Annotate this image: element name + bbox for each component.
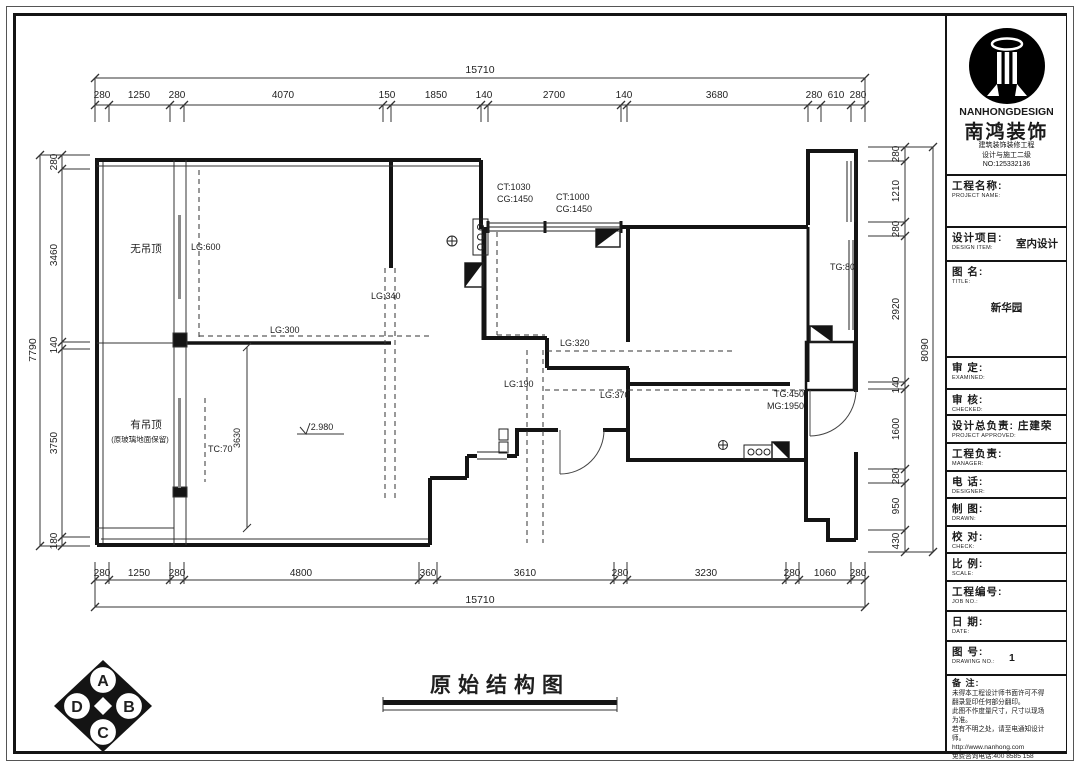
tb-row-checked: 审 核: CHECKED:	[947, 390, 1066, 416]
plan-wall-detail	[97, 160, 479, 545]
plan-interior-dims	[243, 343, 344, 532]
tb-row-scale: 比 例: SCALE:	[947, 554, 1066, 582]
title-underline-thick	[383, 700, 617, 705]
svg-text:4800: 4800	[290, 568, 313, 579]
dim-labels-top: 15710 280 1250 280 4070 150 1850 140 270…	[94, 64, 867, 101]
svg-text:3610: 3610	[514, 568, 537, 579]
svg-text:2920: 2920	[891, 297, 902, 320]
dim-labels-left: 7790 280 3460 140 3750 180	[27, 153, 60, 549]
svg-text:280: 280	[891, 145, 902, 162]
drawing-title-value: 新华园	[947, 300, 1066, 315]
svg-text:1250: 1250	[128, 90, 151, 101]
drawing-no-value: 1	[1009, 652, 1015, 664]
label-lg600: LG:600	[191, 242, 221, 252]
design-item-value: 室内设计	[1016, 236, 1058, 251]
svg-text:140: 140	[891, 376, 902, 393]
dim-total-right: 8090	[919, 338, 931, 362]
brand-logo-cell: NANHONGDESIGN 南鸿装饰 建筑装饰装修工程 设计与施工二级 NO:1…	[947, 16, 1066, 176]
note-line: http://www.nanhong.com	[952, 743, 1062, 752]
tb-row-manager: 工程负责: MANAGER:	[947, 444, 1066, 472]
note-line: 师。	[952, 734, 1062, 743]
tb-notes: 备 注: 未得本工程设计师书面许可不得 翻录复印任何部分翻印。 此图不作度量尺寸…	[947, 676, 1066, 761]
notes-title: 备 注:	[952, 679, 1062, 688]
note-line: 若有不明之处，请至电通知设计	[952, 725, 1062, 734]
svg-text:280: 280	[891, 220, 902, 237]
svg-text:4070: 4070	[272, 90, 295, 101]
label-has-ceiling-note: (原玻璃地面保留)	[111, 434, 169, 444]
tb-row-project-name: 工程名称: PROJECT NAME:	[947, 176, 1066, 228]
tb-row-job-no: 工程编号: JOB NO.:	[947, 582, 1066, 612]
corner-logo-letter-b: B	[123, 699, 135, 716]
note-line: 未得本工程设计师书面许可不得	[952, 689, 1062, 698]
note-line: 翻录复印任何部分翻印。	[952, 698, 1062, 707]
svg-text:430: 430	[891, 532, 902, 549]
svg-text:280: 280	[49, 153, 60, 170]
svg-text:140: 140	[49, 336, 60, 353]
tb-row-proofread: 校 对: CHECK:	[947, 527, 1066, 554]
drawing-sheet: 15710 280 1250 280 4070 150 1850 140 270…	[0, 0, 1080, 767]
column-icon	[969, 28, 1045, 104]
dim-chain-left	[36, 151, 90, 550]
label-no-ceiling: 无吊顶	[130, 243, 162, 255]
corner-logo-letter-c: C	[97, 725, 109, 742]
svg-text:3460: 3460	[49, 243, 60, 266]
label-tg80: TG:80	[830, 262, 855, 272]
tb-row-drawn: 制 图: DRAWN:	[947, 499, 1066, 527]
note-line: 为准。	[952, 716, 1062, 725]
tb-row-drawing-no: 图 号: DRAWING NO.: 1	[947, 642, 1066, 676]
label-lg300: LG:300	[270, 325, 300, 335]
svg-text:280: 280	[806, 90, 823, 101]
label-cg1450a: CG:1450	[497, 194, 533, 204]
svg-text:3750: 3750	[49, 431, 60, 454]
svg-text:140: 140	[476, 90, 493, 101]
label-cg1450b: CG:1450	[556, 204, 592, 214]
brand-sub2: 设计与施工二级	[947, 150, 1066, 160]
tb-row-examined: 审 定: EXAMINED:	[947, 358, 1066, 390]
svg-text:1850: 1850	[425, 90, 448, 101]
sheet-title-group: 原始结构图	[383, 673, 617, 712]
brand-logo-icon	[969, 28, 1045, 104]
svg-text:610: 610	[828, 90, 845, 101]
dim-total-top: 15710	[465, 64, 494, 76]
tb-row-drawing-title: 图 名: TITLE: 新华园	[947, 262, 1066, 358]
svg-text:1250: 1250	[128, 568, 151, 579]
svg-text:280: 280	[169, 90, 186, 101]
label-lg320: LG:320	[560, 338, 590, 348]
svg-text:280: 280	[891, 467, 902, 484]
svg-text:140: 140	[616, 90, 633, 101]
label-lg340: LG:340	[371, 291, 401, 301]
brand-sub1: 建筑装饰装修工程	[947, 140, 1066, 150]
dim-total-bottom: 15710	[465, 594, 494, 606]
label-3630: 3630	[232, 428, 242, 448]
svg-text:360: 360	[420, 568, 437, 579]
chief-designer-value: 庄建荣	[1018, 420, 1053, 432]
corner-logo-letter-d: D	[71, 699, 83, 716]
label-has-ceiling: 有吊顶	[130, 418, 162, 431]
svg-text:280: 280	[94, 90, 111, 101]
svg-text:950: 950	[891, 497, 902, 514]
svg-text:280: 280	[784, 568, 801, 579]
svg-text:280: 280	[850, 90, 867, 101]
corner-diamond-logo: A B C D	[54, 660, 152, 752]
brand-sub3: NO:125332136	[947, 161, 1066, 168]
corner-logo-letter-a: A	[97, 673, 109, 690]
svg-text:1600: 1600	[891, 417, 902, 440]
tb-row-chief-designer: 设计总负责: 庄建荣 PROJECT APPROVED:	[947, 416, 1066, 444]
label-lg190: LG:190	[504, 379, 534, 389]
tb-row-telephone: 电 话: DESIGNER:	[947, 472, 1066, 499]
label-tc70: TC:70	[208, 444, 233, 454]
label-tg450: TG:450	[774, 389, 804, 399]
dim-total-left: 7790	[27, 338, 39, 362]
dim-labels-bottom: 15710 280 1250 280 4800 360 3610 280 323…	[94, 568, 867, 606]
svg-text:3680: 3680	[706, 90, 729, 101]
note-line: 此图不作度量尺寸，尺寸以现场	[952, 707, 1062, 716]
svg-text:280: 280	[94, 568, 111, 579]
svg-text:2700: 2700	[543, 90, 566, 101]
label-ct1030: CT:1030	[497, 182, 531, 192]
label-mg1950: MG:1950	[767, 401, 804, 411]
svg-text:3230: 3230	[695, 568, 718, 579]
svg-text:280: 280	[612, 568, 629, 579]
svg-text:280: 280	[169, 568, 186, 579]
label-ct1000: CT:1000	[556, 192, 590, 202]
label-lg370: LG:370	[600, 390, 630, 400]
tb-row-design-item: 设计项目: DESIGN ITEM: 室内设计	[947, 228, 1066, 262]
svg-text:280: 280	[850, 568, 867, 579]
sheet-title: 原始结构图	[430, 673, 570, 697]
tb-row-date: 日 期: DATE:	[947, 612, 1066, 642]
svg-text:180: 180	[49, 532, 60, 549]
svg-text:1210: 1210	[891, 179, 902, 202]
label-level-2980: 2.980	[311, 422, 334, 432]
svg-text:1060: 1060	[814, 568, 837, 579]
floor-plan-canvas: 15710 280 1250 280 4070 150 1850 140 270…	[0, 0, 945, 767]
plan-walls	[95, 149, 856, 545]
svg-text:150: 150	[379, 90, 396, 101]
title-block: NANHONGDESIGN 南鸿装饰 建筑装饰装修工程 设计与施工二级 NO:1…	[945, 16, 1066, 751]
dim-labels-right: 8090 280 1210 280 2920 140 1600 280 950 …	[891, 145, 931, 549]
note-line: 免费咨询电话:400 8585 158	[952, 752, 1062, 761]
